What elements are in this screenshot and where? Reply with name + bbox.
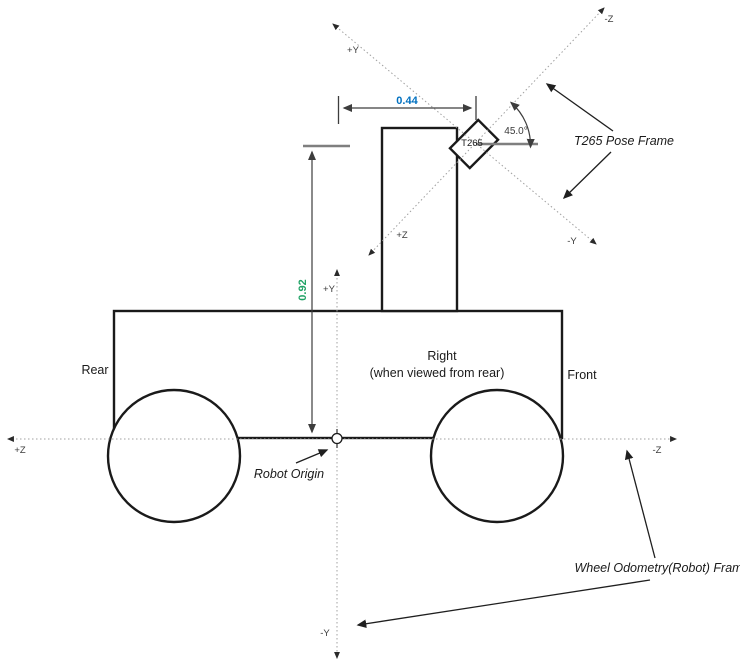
t265-axis-label-plus-z: +Z xyxy=(396,230,408,241)
horizontal-offset-value: 0.44 xyxy=(396,95,418,107)
angle-arc xyxy=(511,103,531,148)
robot-origin-label: Robot Origin xyxy=(254,467,324,481)
wheel-odometry-frame-label: Wheel Odometry(Robot) Frame xyxy=(574,561,740,575)
t265-sensor-label: T265 xyxy=(461,138,483,149)
diagram-svg: Rear Front Right (when viewed from rear)… xyxy=(0,0,740,666)
front-wheel xyxy=(431,390,563,522)
front-label: Front xyxy=(567,368,597,382)
robot-mast xyxy=(382,128,457,311)
t265-frame-arrow-lower xyxy=(564,152,611,198)
rear-wheel xyxy=(108,390,240,522)
t265-frame-arrow-upper xyxy=(547,84,613,131)
robot-origin-marker xyxy=(332,434,342,444)
t265-axis-label-minus-y: -Y xyxy=(567,236,577,247)
robot-axis-label-minus-y: -Y xyxy=(320,628,330,639)
robot-axis-label-plus-z: +Z xyxy=(14,445,26,456)
wheel-odometry-arrow-upper xyxy=(627,451,655,558)
tilt-angle-value: 45.0° xyxy=(504,126,527,137)
t265-axis-label-plus-y: +Y xyxy=(347,45,360,56)
t265-axis-label-minus-z: -Z xyxy=(605,14,614,25)
robot-axis-label-minus-z: -Z xyxy=(653,445,662,456)
t265-pose-frame-label: T265 Pose Frame xyxy=(574,134,674,148)
wheel-odometry-arrow-lower xyxy=(358,580,650,625)
robot-frames-diagram: Rear Front Right (when viewed from rear)… xyxy=(0,0,740,666)
side-label-line1: Right xyxy=(427,349,457,363)
vertical-offset-value: 0.92 xyxy=(297,279,309,300)
robot-axis-label-plus-y: +Y xyxy=(323,284,336,295)
rear-label: Rear xyxy=(81,363,108,377)
side-label-line2: (when viewed from rear) xyxy=(370,366,505,380)
robot-origin-arrow xyxy=(296,450,327,463)
